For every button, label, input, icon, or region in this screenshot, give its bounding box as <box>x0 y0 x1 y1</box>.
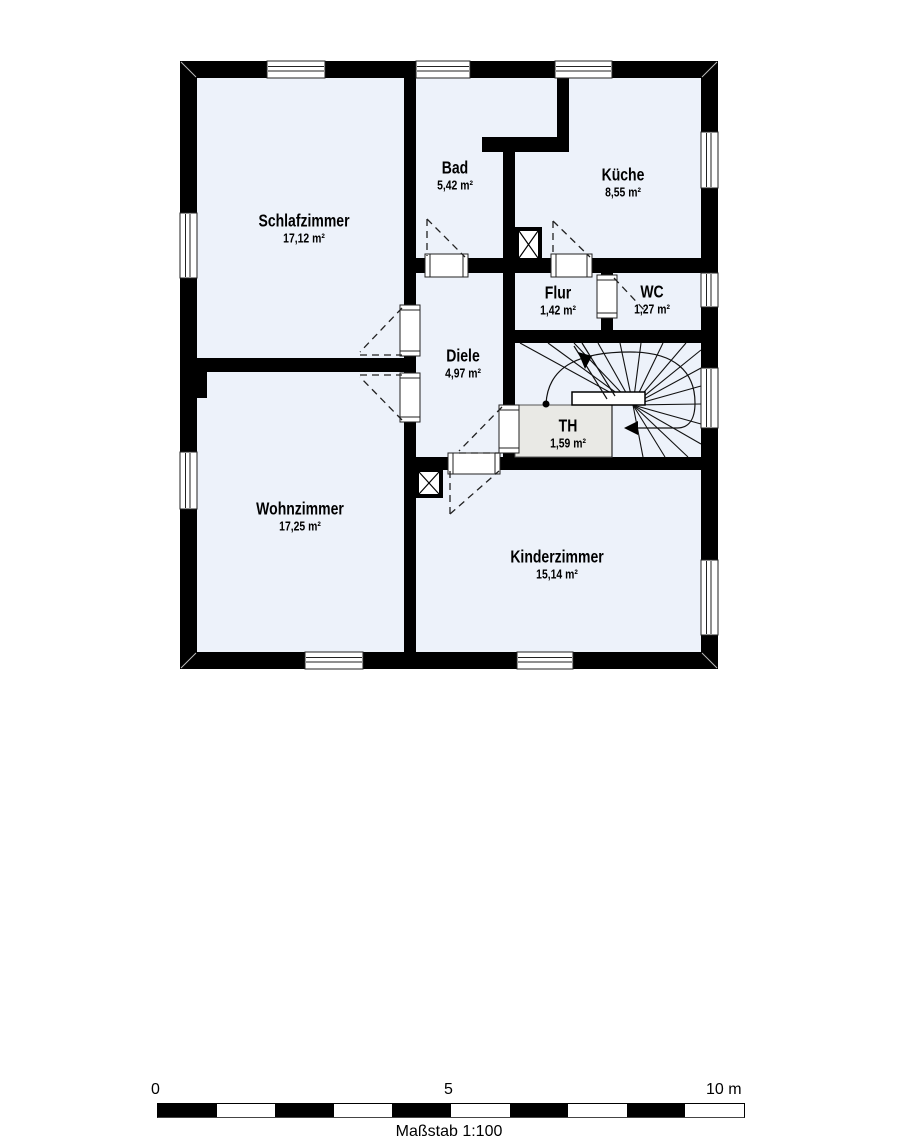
room-area: 15,14 m² <box>510 567 603 582</box>
room-label-wc: WC 1,27 m² <box>634 282 670 317</box>
room-label-diele: Diele 4,97 m² <box>445 346 481 381</box>
room-name: TH <box>550 416 586 436</box>
room-area: 8,55 m² <box>602 185 645 200</box>
shaft-icon <box>415 468 443 498</box>
room-name: Flur <box>540 283 576 303</box>
scale-tick-end: 10 m <box>706 1081 742 1099</box>
wall-segment <box>503 330 718 343</box>
scale-bar-segment <box>275 1104 334 1117</box>
room-area: 1,42 m² <box>540 303 576 318</box>
room-area: 5,42 m² <box>437 178 473 193</box>
door-opening <box>400 373 420 422</box>
room-label-kinderzimmer: Kinderzimmer 15,14 m² <box>510 547 603 582</box>
shaft-icon <box>515 227 542 262</box>
door-opening <box>400 305 420 356</box>
room-area: 1,59 m² <box>550 436 586 451</box>
room-label-bad: Bad 5,42 m² <box>437 158 473 193</box>
scale-bar-segment <box>627 1104 686 1117</box>
room-label-schlafzimmer: Schlafzimmer 17,12 m² <box>258 211 349 246</box>
scale-bar-segments <box>157 1103 745 1118</box>
room-label-flur: Flur 1,42 m² <box>540 283 576 318</box>
window <box>555 61 612 78</box>
window <box>701 273 718 307</box>
room-area: 4,97 m² <box>445 366 481 381</box>
wall-segment <box>197 358 416 372</box>
scale-bar-segment <box>158 1104 217 1117</box>
room-label-th: TH 1,59 m² <box>550 416 586 451</box>
window <box>267 61 325 78</box>
walk-line-start-dot <box>543 401 550 408</box>
window <box>701 132 718 188</box>
door-opening <box>448 453 500 474</box>
wall-segment <box>482 137 569 152</box>
window <box>180 213 197 278</box>
scale-bar-segment <box>568 1104 627 1117</box>
stair-landing-bar <box>572 392 645 405</box>
scale-bar-segment <box>510 1104 569 1117</box>
room-name: Diele <box>445 346 481 366</box>
door-opening <box>499 405 519 453</box>
window <box>701 368 718 428</box>
window <box>305 652 363 669</box>
scale-tick-start: 0 <box>151 1081 160 1099</box>
scale-bar-segment <box>392 1104 451 1117</box>
scale-caption: Maßstab 1:100 <box>396 1123 503 1141</box>
window <box>701 560 718 635</box>
scale-bar-segment <box>451 1104 510 1117</box>
floor-plan-page: Schlafzimmer 17,12 m² Bad 5,42 m² Küche … <box>0 0 901 1148</box>
scale-bar-segment <box>334 1104 393 1117</box>
room-label-wohnzimmer: Wohnzimmer 17,25 m² <box>256 499 344 534</box>
scale-tick-middle: 5 <box>444 1081 453 1099</box>
room-label-kueche: Küche 8,55 m² <box>602 165 645 200</box>
room-area: 1,27 m² <box>634 302 670 317</box>
door-opening <box>551 254 592 277</box>
room-name: WC <box>634 282 670 302</box>
door-opening <box>425 254 468 277</box>
room-name: Kinderzimmer <box>510 547 603 567</box>
room-name: Wohnzimmer <box>256 499 344 519</box>
room-name: Bad <box>437 158 473 178</box>
window <box>517 652 573 669</box>
door-opening <box>597 275 617 318</box>
room-name: Küche <box>602 165 645 185</box>
window <box>180 452 197 509</box>
wall-segment <box>180 652 718 669</box>
room-name: Schlafzimmer <box>258 211 349 231</box>
window <box>416 61 470 78</box>
scale-bar-segment <box>685 1104 744 1117</box>
room-area: 17,12 m² <box>258 231 349 246</box>
wall-segment <box>180 61 197 669</box>
room-area: 17,25 m² <box>256 519 344 534</box>
wall-segment <box>197 372 207 398</box>
scale-bar-segment <box>217 1104 276 1117</box>
